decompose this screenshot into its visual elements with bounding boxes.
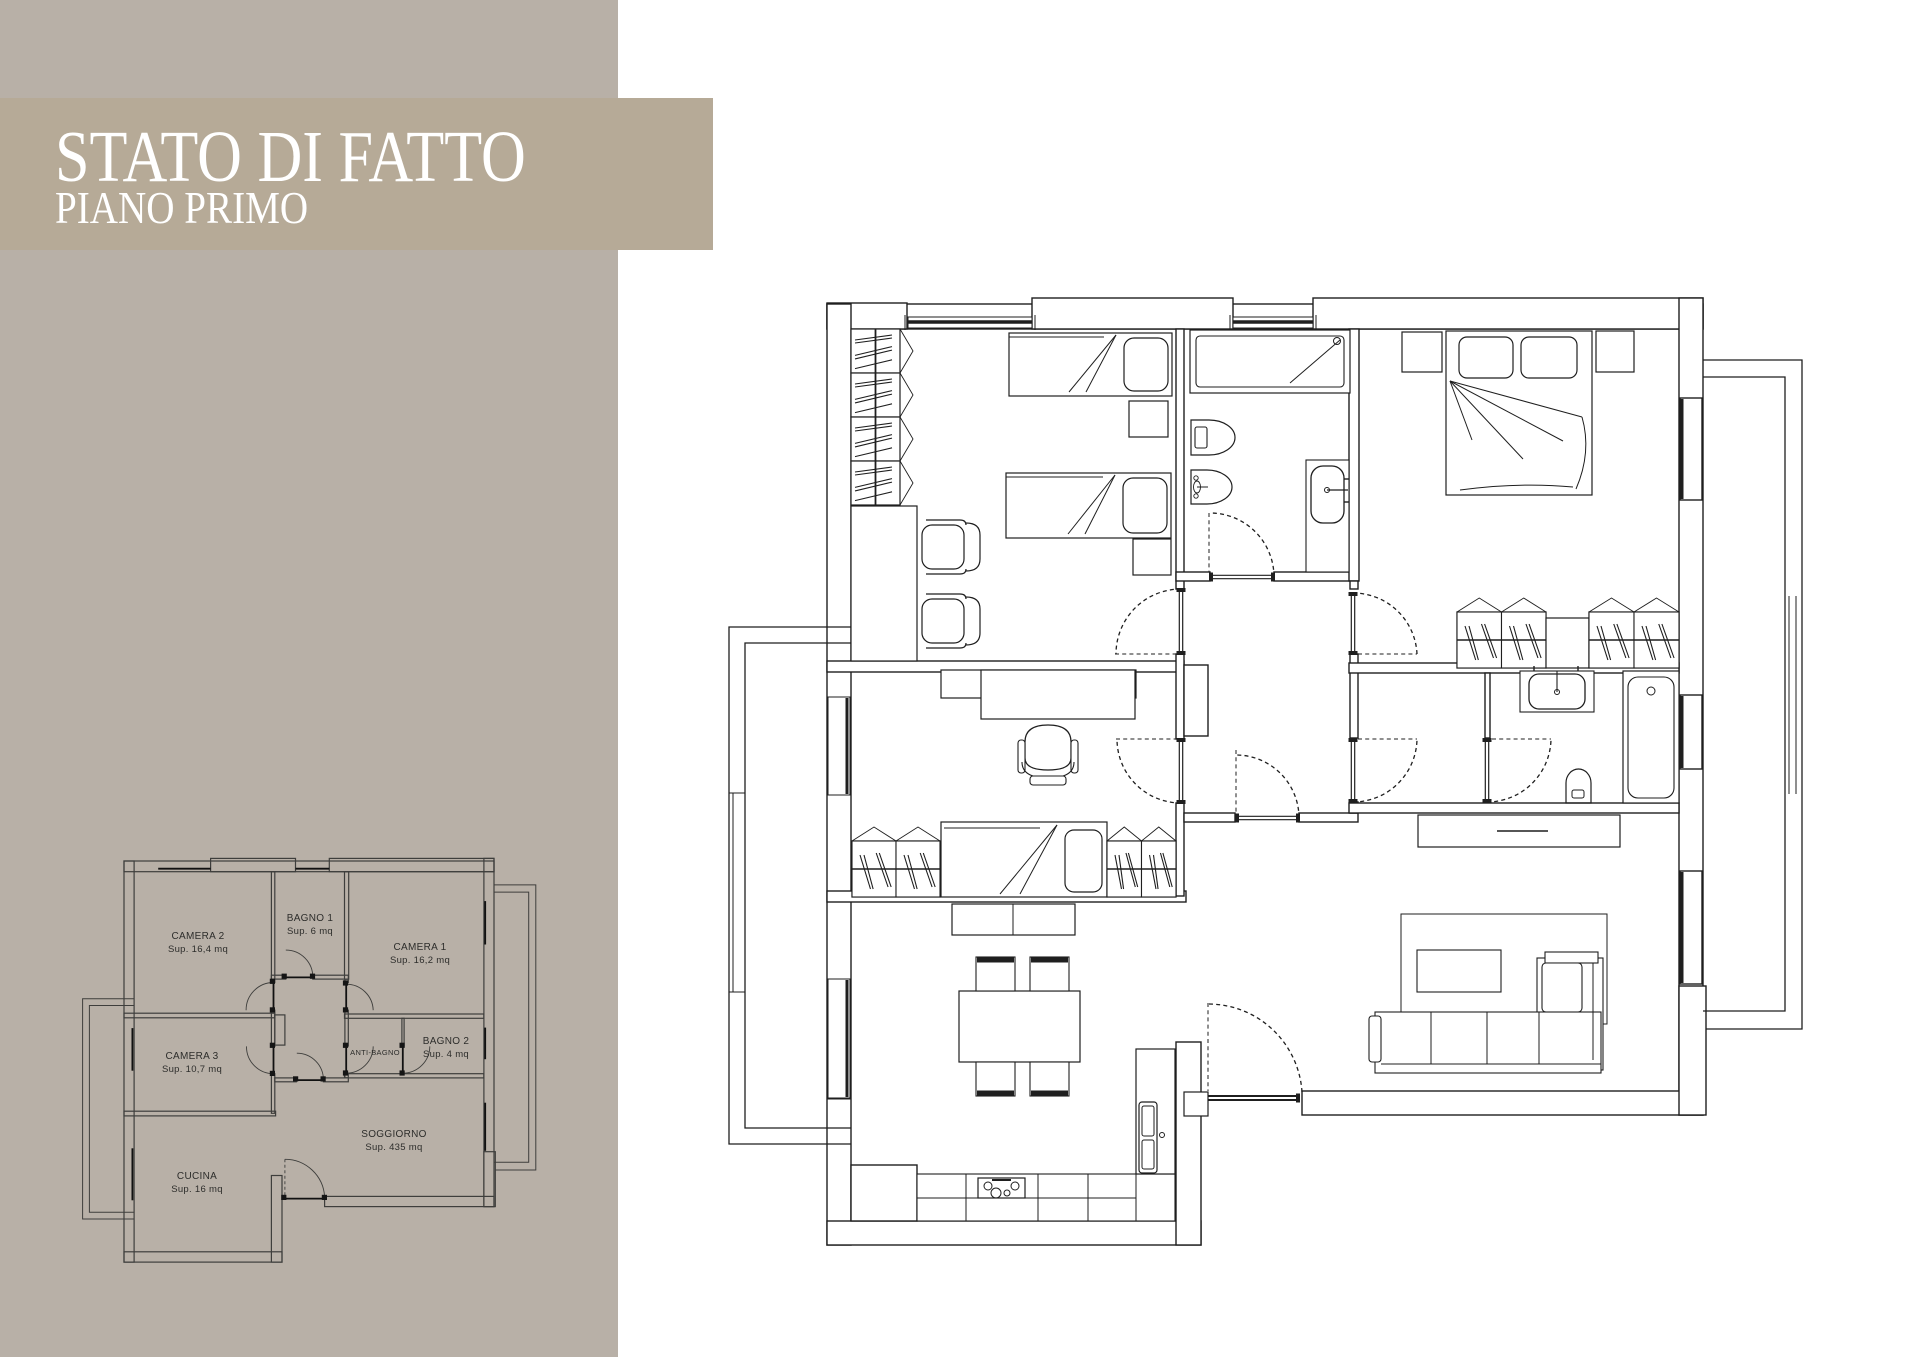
svg-text:Sup. 16 mq: Sup. 16 mq — [171, 1184, 223, 1195]
svg-text:Sup. 16,2 mq: Sup. 16,2 mq — [390, 955, 450, 966]
svg-text:ANTI-BAGNO: ANTI-BAGNO — [350, 1048, 400, 1057]
svg-text:CUCINA: CUCINA — [177, 1171, 217, 1182]
svg-text:BAGNO 1: BAGNO 1 — [287, 913, 334, 924]
svg-text:CAMERA 1: CAMERA 1 — [394, 942, 447, 953]
svg-text:SOGGIORNO: SOGGIORNO — [361, 1129, 426, 1140]
svg-text:BAGNO 2: BAGNO 2 — [423, 1036, 470, 1047]
svg-text:Sup. 10,7 mq: Sup. 10,7 mq — [162, 1064, 222, 1075]
svg-text:Sup. 435 mq: Sup. 435 mq — [365, 1142, 422, 1153]
svg-text:Sup. 16,4 mq: Sup. 16,4 mq — [168, 944, 228, 955]
svg-text:CAMERA 2: CAMERA 2 — [172, 931, 225, 942]
svg-text:Sup. 6 mq: Sup. 6 mq — [287, 926, 333, 937]
svg-text:Sup. 4 mq: Sup. 4 mq — [423, 1049, 469, 1060]
svg-text:CAMERA 3: CAMERA 3 — [166, 1051, 219, 1062]
